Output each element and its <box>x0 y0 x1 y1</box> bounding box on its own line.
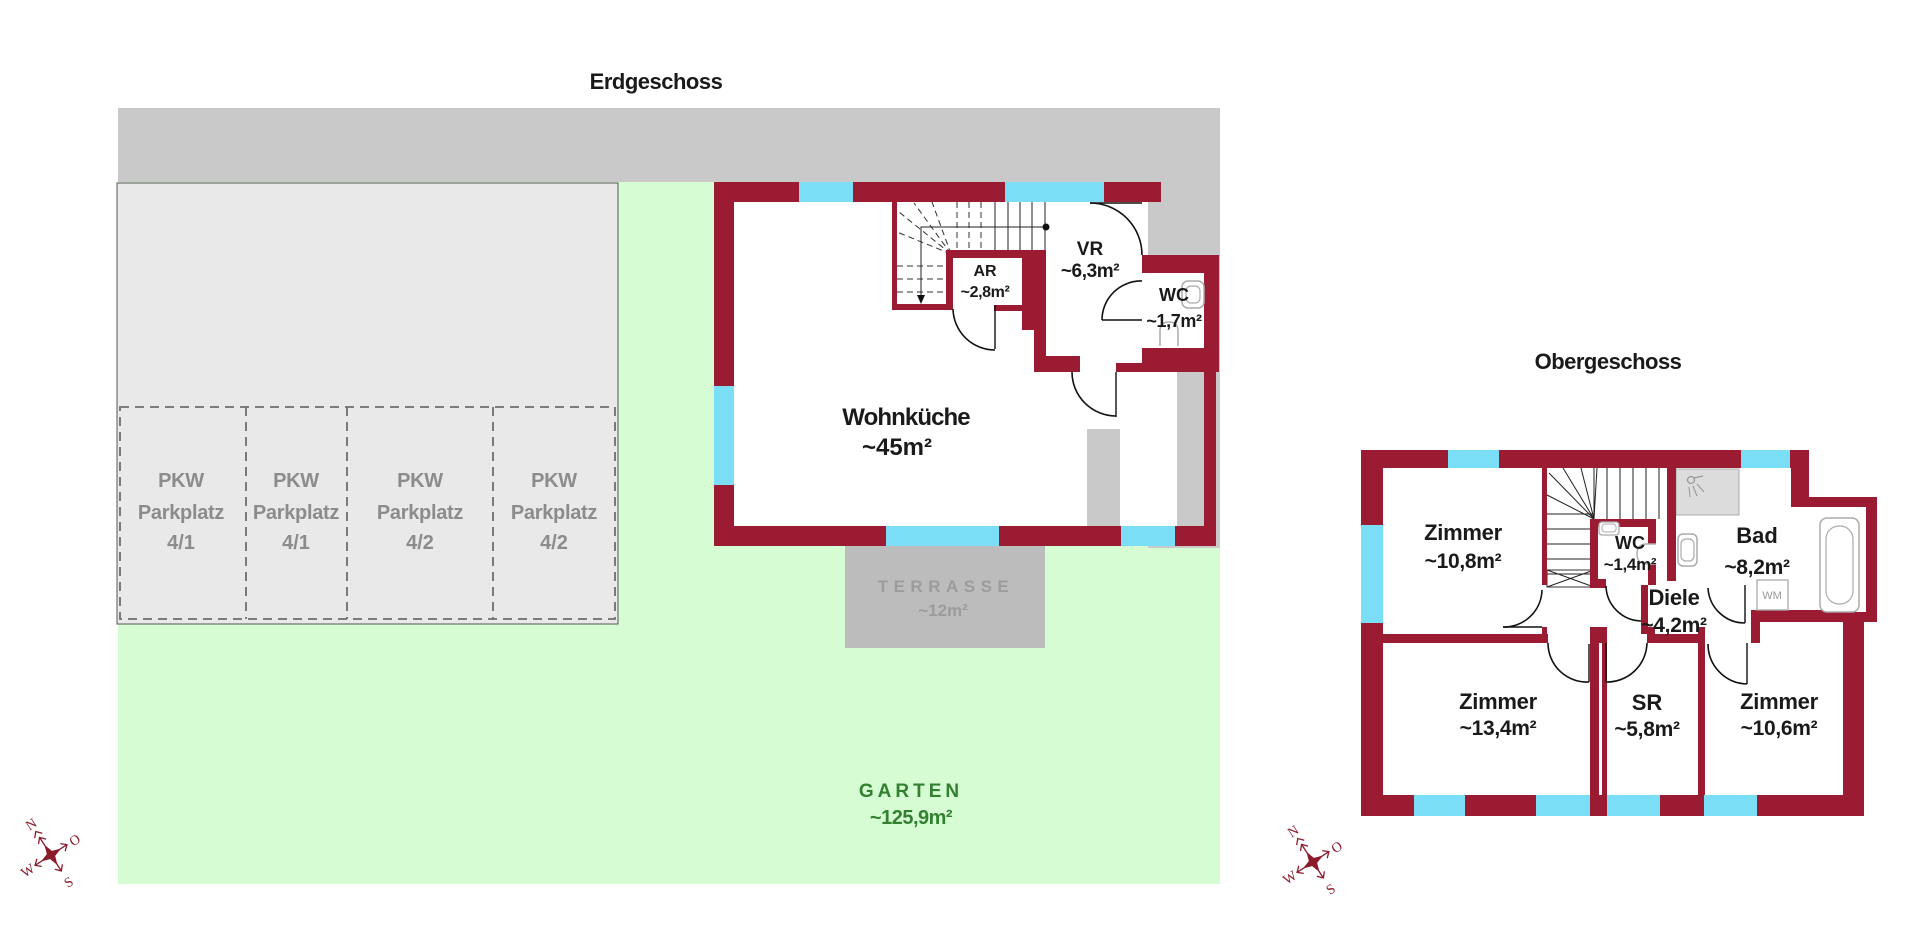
svg-text:4/2: 4/2 <box>540 532 568 554</box>
svg-text:Obergeschoss: Obergeschoss <box>1535 349 1682 374</box>
svg-text:GARTEN: GARTEN <box>859 781 963 802</box>
svg-text:Zimmer: Zimmer <box>1459 689 1537 714</box>
svg-text:PKW: PKW <box>397 470 443 492</box>
svg-text:~4,2m²: ~4,2m² <box>1641 614 1707 637</box>
svg-text:~6,3m²: ~6,3m² <box>1061 261 1119 282</box>
svg-text:~1,7m²: ~1,7m² <box>1146 311 1202 331</box>
svg-text:WC: WC <box>1159 285 1189 305</box>
svg-text:~1,4m²: ~1,4m² <box>1604 555 1657 574</box>
svg-text:S: S <box>62 875 77 892</box>
svg-text:Zimmer: Zimmer <box>1424 520 1502 545</box>
svg-text:PKW: PKW <box>158 470 204 492</box>
svg-text:4/2: 4/2 <box>406 532 434 554</box>
svg-text:~10,8m²: ~10,8m² <box>1425 550 1502 573</box>
svg-text:Parkplatz: Parkplatz <box>138 502 225 524</box>
svg-text:~5,8m²: ~5,8m² <box>1614 718 1680 741</box>
svg-text:S: S <box>1324 882 1339 899</box>
svg-text:Parkplatz: Parkplatz <box>511 502 598 524</box>
svg-text:PKW: PKW <box>531 470 577 492</box>
svg-text:WM: WM <box>1762 590 1782 602</box>
svg-text:~45m²: ~45m² <box>862 434 932 461</box>
svg-text:~10,6m²: ~10,6m² <box>1741 717 1818 740</box>
svg-text:~125,9m²: ~125,9m² <box>870 807 953 829</box>
svg-text:AR: AR <box>973 263 997 280</box>
svg-text:Erdgeschoss: Erdgeschoss <box>590 69 723 94</box>
svg-text:TERRASSE: TERRASSE <box>878 577 1015 596</box>
svg-text:O: O <box>67 832 84 850</box>
svg-text:Parkplatz: Parkplatz <box>253 502 340 524</box>
svg-text:~12m²: ~12m² <box>918 601 968 620</box>
svg-text:Diele: Diele <box>1648 585 1699 610</box>
svg-text:O: O <box>1329 839 1346 857</box>
svg-text:4/1: 4/1 <box>282 532 310 554</box>
svg-text:Bad: Bad <box>1736 523 1778 548</box>
svg-text:~8,2m²: ~8,2m² <box>1724 556 1790 579</box>
svg-text:Parkplatz: Parkplatz <box>377 502 464 524</box>
svg-text:SR: SR <box>1632 690 1663 715</box>
svg-text:PKW: PKW <box>273 470 319 492</box>
svg-text:~2,8m²: ~2,8m² <box>961 284 1010 301</box>
svg-text:~13,4m²: ~13,4m² <box>1460 717 1537 740</box>
svg-text:Zimmer: Zimmer <box>1740 689 1818 714</box>
svg-text:VR: VR <box>1077 239 1104 260</box>
svg-text:4/1: 4/1 <box>167 532 195 554</box>
svg-text:Wohnküche: Wohnküche <box>842 404 970 431</box>
svg-text:WC: WC <box>1615 533 1645 553</box>
